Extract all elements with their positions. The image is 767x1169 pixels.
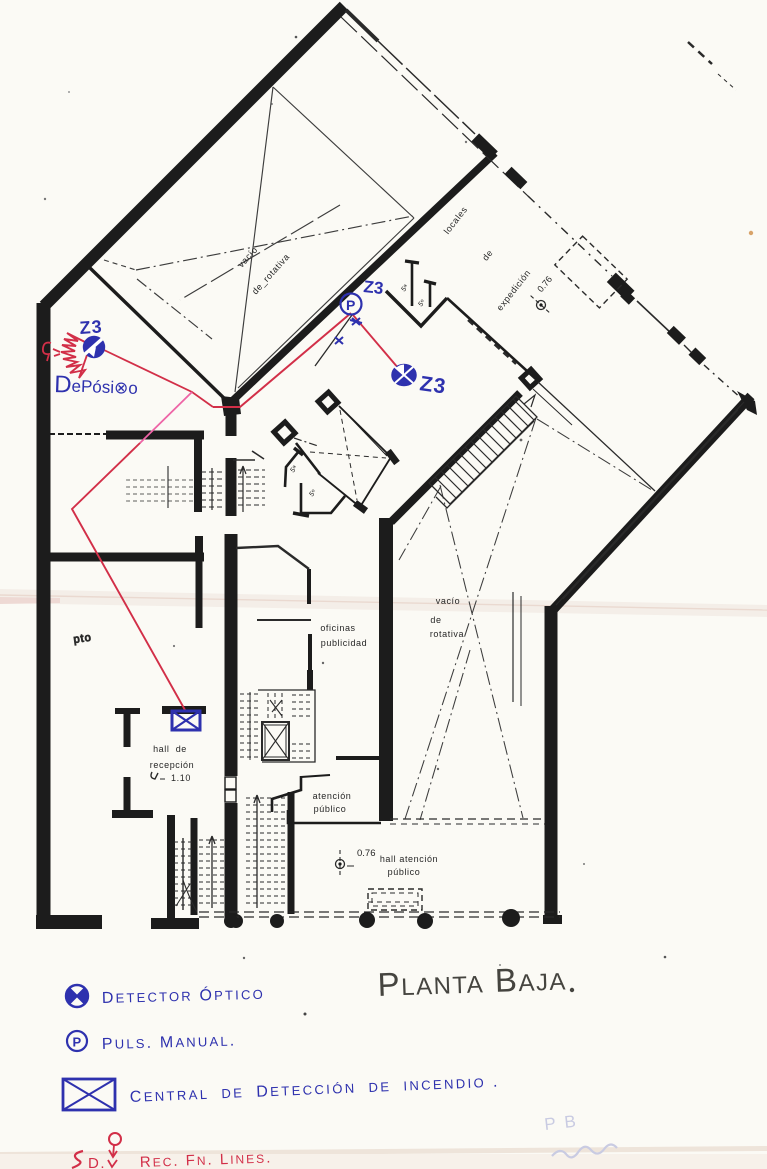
- svg-text:Z3: Z3: [363, 277, 385, 298]
- svg-text:1.10: 1.10: [171, 773, 191, 783]
- svg-text:D.: D.: [88, 1155, 106, 1169]
- svg-text:pto: pto: [73, 632, 93, 646]
- svg-text:rotativa: rotativa: [430, 629, 464, 639]
- svg-text:publicidad: publicidad: [321, 638, 368, 648]
- svg-text:Z3: Z3: [79, 316, 103, 338]
- svg-text:atención: atención: [313, 791, 352, 801]
- svg-text:0.76: 0.76: [357, 848, 376, 859]
- svg-text:P: P: [73, 1035, 82, 1050]
- svg-text:público: público: [388, 867, 421, 877]
- svg-text:hall atención: hall atención: [380, 854, 438, 864]
- svg-text:de: de: [430, 615, 441, 625]
- svg-text:vacío: vacío: [436, 596, 461, 606]
- svg-text:recepción: recepción: [150, 760, 194, 770]
- svg-text:Z3: Z3: [418, 372, 447, 398]
- svg-text:P B: P B: [543, 1112, 578, 1134]
- svg-text:P: P: [346, 297, 355, 313]
- svg-text:hall de: hall de: [153, 744, 187, 754]
- svg-text:público: público: [314, 804, 347, 814]
- svg-text:oficinas: oficinas: [320, 623, 355, 633]
